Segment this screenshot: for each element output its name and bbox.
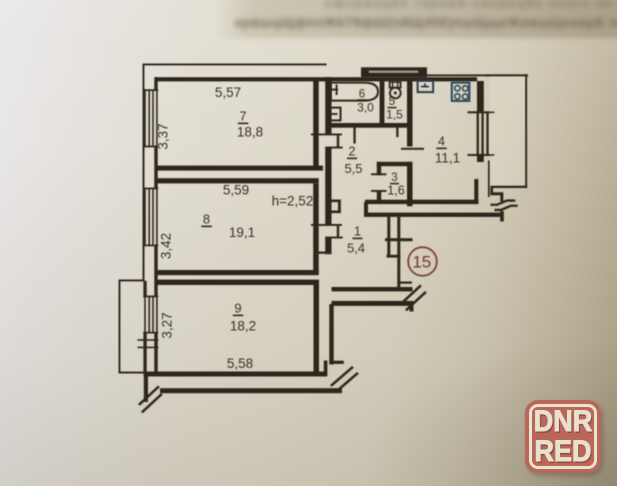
svg-text:6: 6 [359,89,365,101]
svg-text:2: 2 [349,145,356,159]
svg-text:3,37: 3,37 [156,123,171,149]
svg-text:1,5: 1,5 [386,108,403,122]
svg-text:1: 1 [354,225,361,239]
svg-text:5,4: 5,4 [347,241,365,256]
svg-text:5,59: 5,59 [223,183,249,198]
svg-text:3,27: 3,27 [160,312,175,338]
svg-text:19,1: 19,1 [229,225,255,240]
svg-text:7: 7 [239,109,246,124]
svg-text:18,8: 18,8 [237,125,263,140]
svg-text:9: 9 [234,301,241,316]
svg-text:h=2,52: h=2,52 [272,194,314,209]
svg-text:5,57: 5,57 [215,85,241,100]
svg-text:11,1: 11,1 [435,151,460,166]
svg-text:3,0: 3,0 [357,101,374,115]
svg-text:4: 4 [438,135,445,149]
svg-text:5: 5 [389,96,395,108]
svg-text:18,2: 18,2 [230,319,256,334]
svg-text:3,42: 3,42 [159,233,174,259]
svg-text:5,58: 5,58 [227,356,253,371]
svg-text:3: 3 [391,172,397,184]
svg-text:5,5: 5,5 [344,161,362,176]
svg-text:1,6: 1,6 [387,184,404,198]
svg-text:8: 8 [203,212,210,227]
svg-text:15: 15 [412,253,431,272]
